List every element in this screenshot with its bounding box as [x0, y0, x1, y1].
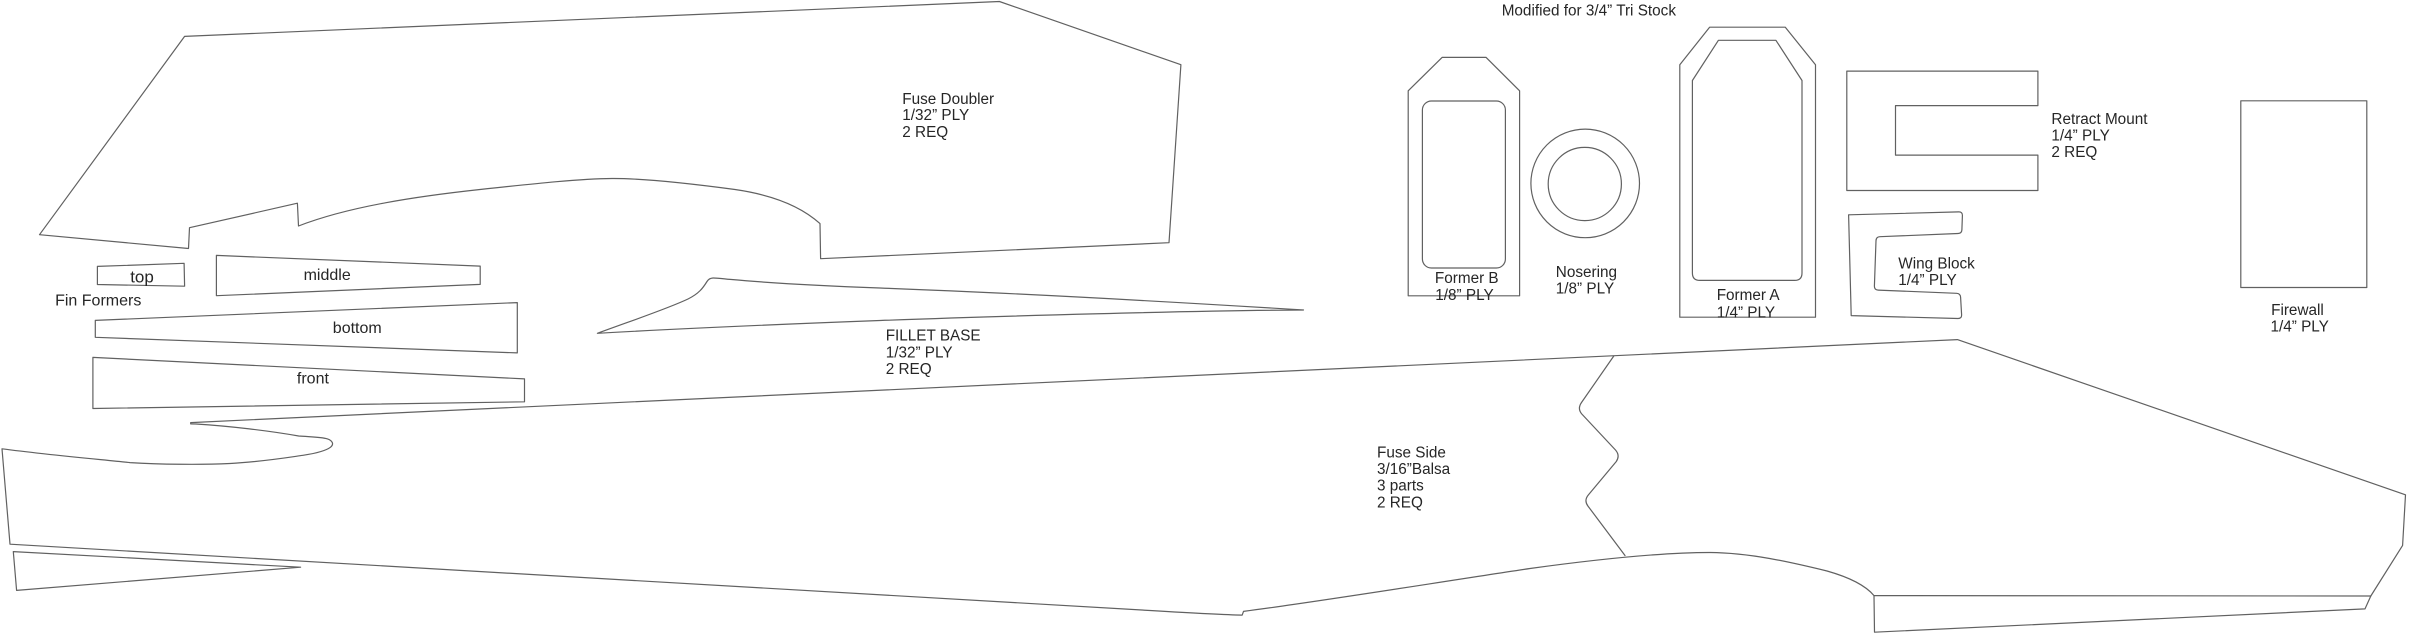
svg-text:1/32” PLY: 1/32” PLY — [886, 344, 953, 361]
svg-text:bottom: bottom — [333, 320, 382, 337]
svg-text:2 REQ: 2 REQ — [902, 124, 948, 141]
svg-text:2 REQ: 2 REQ — [886, 361, 932, 378]
svg-text:Retract Mount: Retract Mount — [2051, 111, 2148, 128]
svg-text:Firewall: Firewall — [2271, 302, 2324, 319]
svg-text:top: top — [130, 268, 154, 287]
svg-text:1/32” PLY: 1/32” PLY — [902, 107, 969, 124]
svg-text:Former B: Former B — [1435, 270, 1499, 287]
svg-text:1/8” PLY: 1/8” PLY — [1556, 281, 1614, 298]
svg-text:Wing Block: Wing Block — [1898, 256, 1975, 273]
svg-text:Modified for 3/4” Tri Stock: Modified for 3/4” Tri Stock — [1502, 2, 1677, 19]
svg-text:3 parts: 3 parts — [1377, 478, 1424, 495]
svg-text:1/4” PLY: 1/4” PLY — [1898, 272, 1956, 289]
svg-text:Fuse Side: Fuse Side — [1377, 445, 1446, 462]
svg-text:Nosering: Nosering — [1556, 264, 1617, 281]
svg-text:Fuse Doubler: Fuse Doubler — [902, 91, 994, 108]
svg-text:1/4” PLY: 1/4” PLY — [2271, 319, 2329, 336]
svg-text:1/8” PLY: 1/8” PLY — [1435, 287, 1493, 304]
svg-text:front: front — [297, 370, 330, 387]
svg-text:1/4” PLY: 1/4” PLY — [2051, 127, 2109, 144]
svg-text:3/16”Balsa: 3/16”Balsa — [1377, 461, 1451, 478]
svg-text:FILLET BASE: FILLET BASE — [886, 328, 981, 345]
svg-text:middle: middle — [304, 267, 351, 284]
svg-text:2 REQ: 2 REQ — [2051, 144, 2097, 161]
svg-text:Fin Formers: Fin Formers — [55, 292, 141, 309]
svg-text:2 REQ: 2 REQ — [1377, 494, 1423, 511]
svg-text:1/4” PLY: 1/4” PLY — [1717, 304, 1775, 321]
svg-text:Former A: Former A — [1717, 287, 1781, 304]
